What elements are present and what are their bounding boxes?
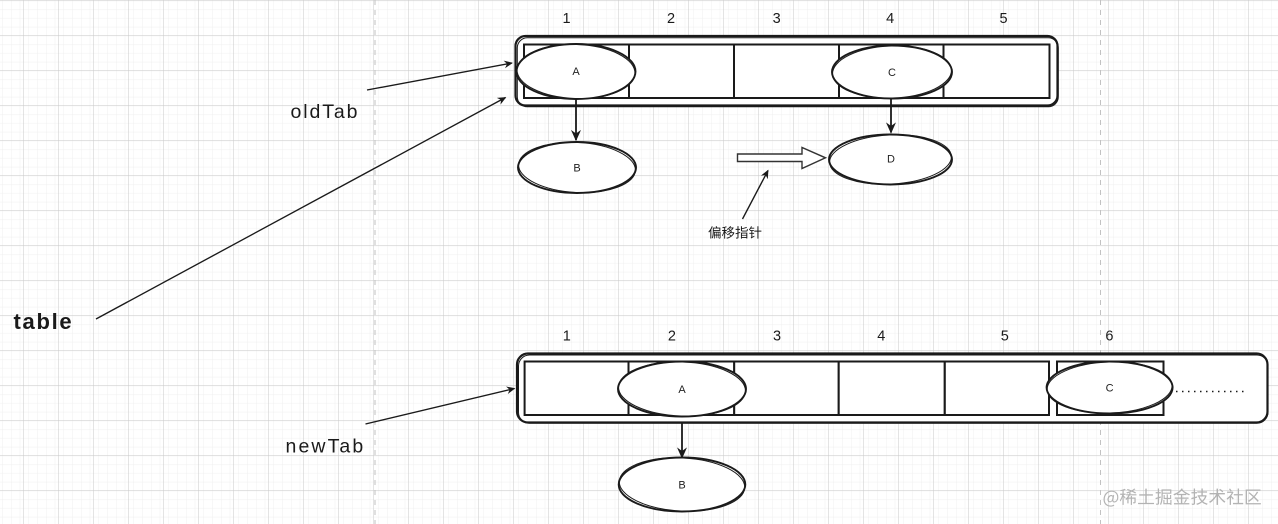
svg-text:4: 4 xyxy=(886,11,894,27)
svg-text:oldTab: oldTab xyxy=(291,101,360,123)
svg-text:C: C xyxy=(1106,383,1114,395)
svg-text:table: table xyxy=(14,309,74,334)
svg-text:5: 5 xyxy=(1000,11,1008,27)
svg-text:3: 3 xyxy=(773,11,781,27)
svg-text:A: A xyxy=(572,66,580,78)
svg-text:B: B xyxy=(678,480,685,492)
svg-text:2: 2 xyxy=(667,11,675,27)
svg-text:4: 4 xyxy=(877,329,885,345)
svg-text:6: 6 xyxy=(1105,329,1113,345)
svg-text:1: 1 xyxy=(563,329,571,345)
svg-text:newTab: newTab xyxy=(286,436,366,458)
svg-text:C: C xyxy=(888,67,896,79)
svg-text:D: D xyxy=(887,154,895,166)
svg-text:B: B xyxy=(573,163,580,175)
svg-text:3: 3 xyxy=(773,329,781,345)
svg-text:A: A xyxy=(678,384,686,396)
svg-text:1: 1 xyxy=(563,11,571,27)
svg-text:5: 5 xyxy=(1001,329,1009,345)
svg-text:2: 2 xyxy=(668,329,676,345)
